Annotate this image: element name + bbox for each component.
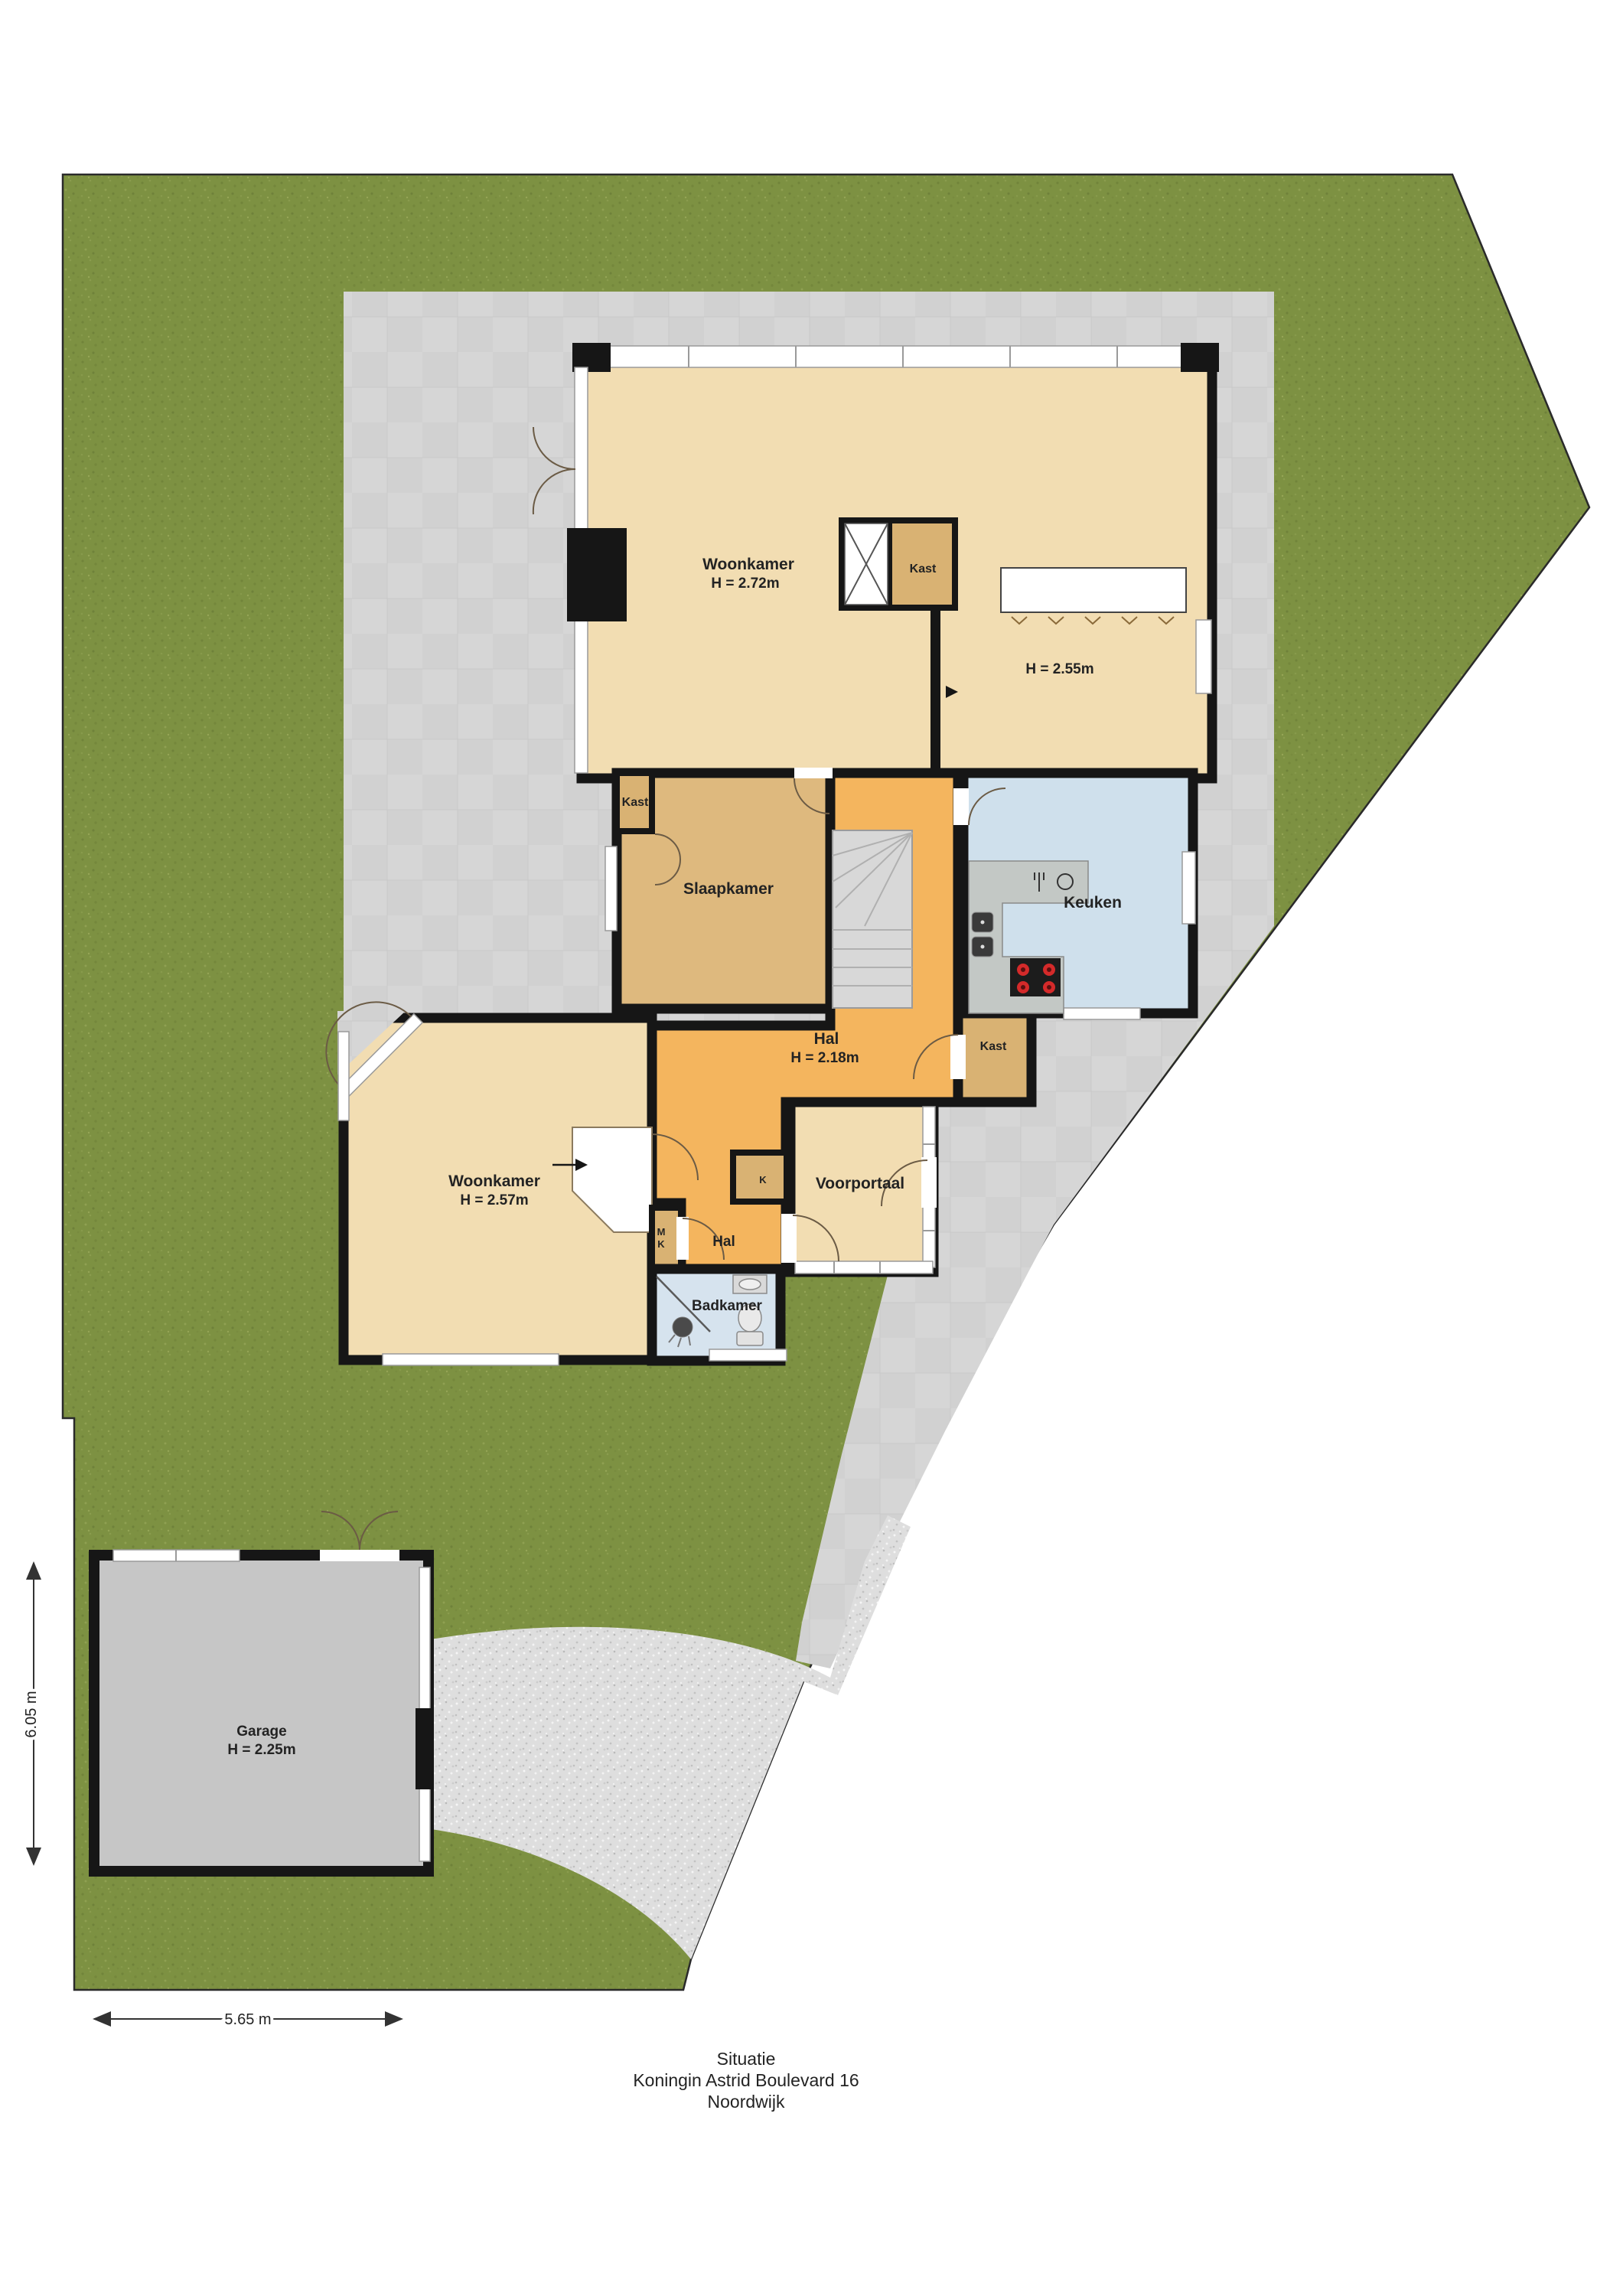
title-line3: Noordwijk: [708, 2092, 785, 2112]
title-line2: Koningin Astrid Boulevard 16: [633, 2070, 859, 2090]
wall-pillar: [567, 528, 627, 621]
label-badkamer: Badkamer: [692, 1298, 762, 1314]
label-woonkamer-beneden: Woonkamer: [448, 1172, 540, 1190]
situation-floorplan: Woonkamer H = 2.72m H = 2.55m Kast: [0, 0, 1623, 2296]
window-voorportaal-south: [795, 1261, 933, 1274]
label-hal-height: H = 2.18m: [790, 1050, 859, 1066]
divider-wall: [930, 605, 940, 773]
window-right-room: [1196, 620, 1211, 693]
garage-east-wall-segment: [416, 1708, 434, 1789]
label-slaapkamer-kast: Kast: [622, 796, 649, 809]
label-kamer-rechts-height: H = 2.55m: [1025, 661, 1093, 677]
kast-schacht-box: [839, 517, 958, 611]
upper-block: Woonkamer H = 2.72m H = 2.55m Kast: [533, 343, 1219, 778]
label-garage: Garage: [236, 1724, 286, 1740]
label-voorportaal: Voorportaal: [816, 1175, 904, 1192]
label-hal: Hal: [814, 1030, 839, 1048]
title-line1: Situatie: [717, 2049, 776, 2069]
window-keuken-east: [1182, 852, 1195, 924]
room-kast-hal: [958, 1013, 1031, 1102]
label-keuken: Keuken: [1064, 894, 1122, 912]
dimension-plot-left: 6.05 m: [23, 1691, 40, 1737]
garage-block: Garage H = 2.25m: [94, 1512, 434, 1871]
window-badkamer: [709, 1349, 787, 1361]
window-slaapkamer: [605, 846, 617, 931]
garage-door-opening: [320, 1550, 399, 1561]
label-hal-beneden: Hal: [712, 1234, 735, 1250]
label-slaapkamer: Slaapkamer: [683, 880, 774, 898]
window-woonkamer-south: [383, 1354, 559, 1365]
dimension-plot-bottom: 5.65 m: [224, 2011, 271, 2028]
window-band-top: [576, 346, 1217, 367]
label-meterkast-k: K: [657, 1238, 665, 1250]
label-meterkast-m: M: [657, 1226, 666, 1238]
label-kast-k: K: [759, 1174, 767, 1186]
label-woonkamer-beneden-height: H = 2.57m: [460, 1192, 528, 1208]
label-kast-schacht: Kast: [910, 563, 937, 576]
label-garage-height: H = 2.25m: [227, 1742, 295, 1758]
stove-icon: [1010, 958, 1061, 996]
room-garage: [94, 1555, 429, 1871]
window-keuken-south: [1064, 1008, 1140, 1019]
window-woonkamer-west: [338, 1032, 349, 1120]
stairs-icon: [833, 830, 912, 1008]
bath-sink-icon: [733, 1275, 767, 1293]
label-kast-hal: Kast: [980, 1040, 1007, 1053]
label-woonkamer-boven: Woonkamer: [702, 556, 794, 573]
label-woonkamer-boven-height: H = 2.72m: [711, 576, 779, 592]
corner-post-right: [1181, 343, 1219, 372]
